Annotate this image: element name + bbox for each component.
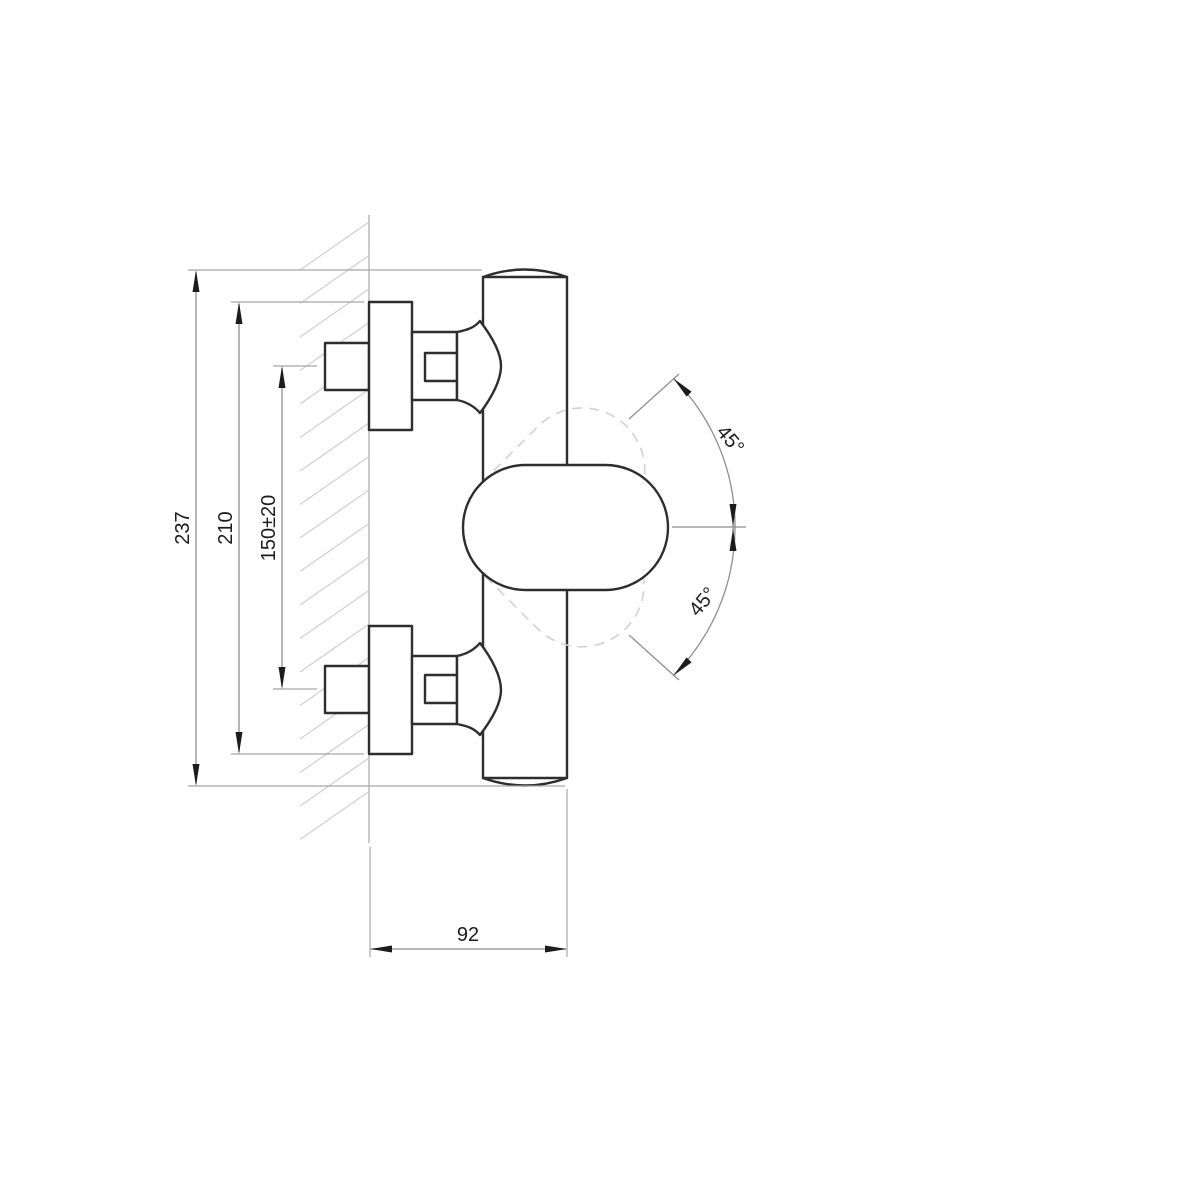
technical-drawing-canvas: 237 210 150±20 92 45° 45°	[0, 0, 1200, 1200]
dimension-150: 150±20	[258, 366, 317, 689]
dim-label-92: 92	[457, 924, 479, 946]
upper-inlet-assembly	[325, 302, 501, 430]
arrow-arc-top	[674, 379, 692, 397]
arrow-150-top	[279, 366, 286, 388]
angle-label-upper: 45°	[712, 421, 748, 458]
arrow-237-bottom	[193, 764, 200, 786]
arrow-210-top	[236, 302, 243, 324]
arrow-arc-bottom	[674, 657, 692, 675]
upper-wall-flange	[369, 302, 412, 430]
handle-lever	[463, 465, 668, 590]
dim-label-150: 150±20	[258, 495, 280, 562]
upper-connector-nut	[425, 353, 457, 381]
arrow-150-bottom	[279, 667, 286, 689]
upper-inlet-pipe	[325, 343, 369, 390]
dim-label-237: 237	[172, 511, 194, 544]
dimension-92: 92	[370, 789, 567, 957]
arrow-237-top	[193, 270, 200, 292]
arrow-210-bottom	[236, 732, 243, 754]
angle-lower-extension	[629, 635, 679, 680]
arrow-92-left	[370, 946, 392, 953]
dim-label-210: 210	[215, 511, 237, 544]
lower-inlet-pipe	[325, 666, 369, 713]
lower-wall-flange	[369, 626, 412, 754]
lower-inlet-assembly	[325, 626, 501, 754]
wall-hatching	[300, 222, 369, 840]
arrow-92-right	[545, 946, 567, 953]
drawing-svg: 237 210 150±20 92 45° 45°	[0, 0, 1200, 1200]
angle-upper-extension	[629, 374, 679, 419]
lower-connector-nut	[425, 675, 457, 703]
